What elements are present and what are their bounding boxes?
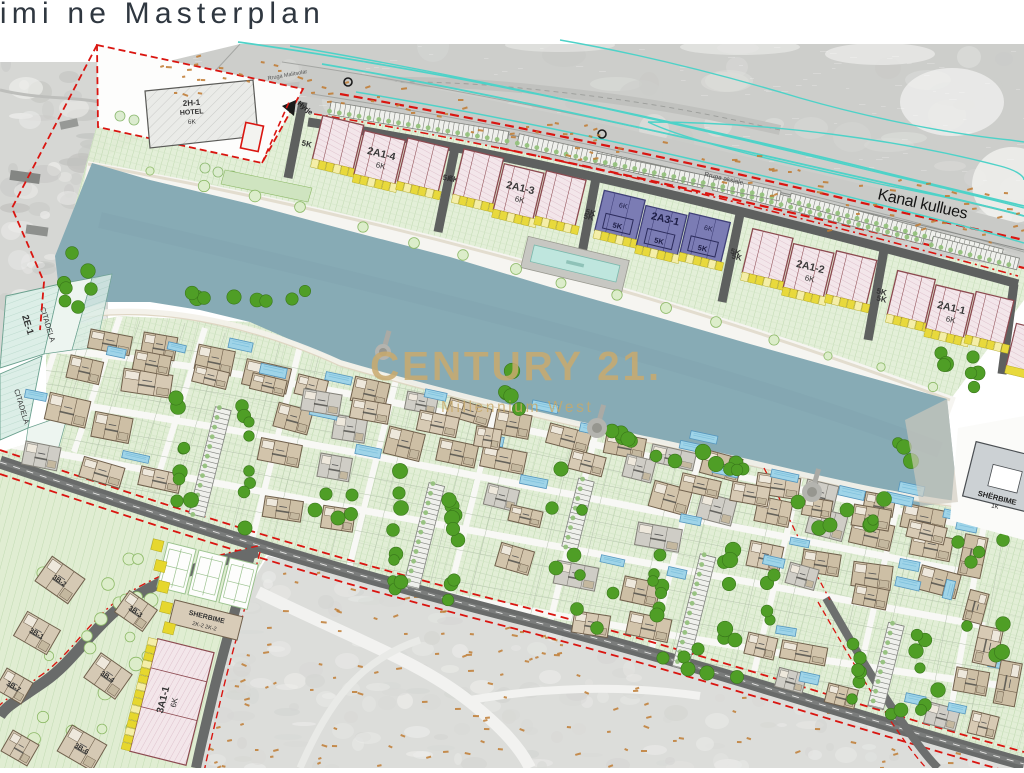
- svg-text:6K: 6K: [188, 118, 197, 126]
- svg-text:2H-1: 2H-1: [183, 98, 201, 108]
- svg-text:Millennium West: Millennium West: [441, 399, 593, 416]
- svg-text:CENTURY 21.: CENTURY 21.: [370, 343, 662, 389]
